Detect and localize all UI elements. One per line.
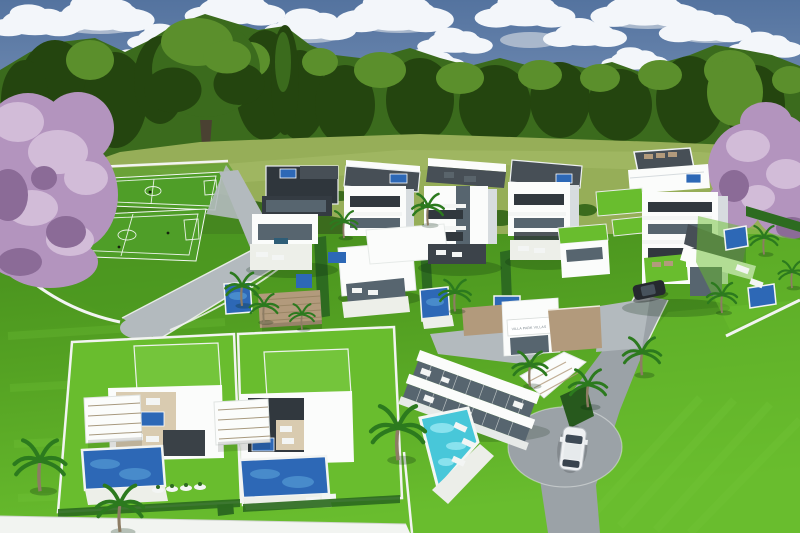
rooftop-pool xyxy=(390,174,407,183)
green-roof xyxy=(134,343,221,391)
furniture xyxy=(534,248,545,253)
sofa xyxy=(280,426,292,432)
villa-plot-2 xyxy=(214,327,402,512)
render-canvas: VILLA PARK VILLAS xyxy=(0,0,800,533)
terrace-pool xyxy=(724,226,748,250)
terrace-pool xyxy=(748,284,776,308)
green-roof-wing xyxy=(596,188,644,216)
garden-pool xyxy=(328,252,346,263)
indoor-pool xyxy=(141,412,164,426)
green-roof xyxy=(264,349,351,397)
main-pool xyxy=(82,446,165,490)
garden-lounger xyxy=(664,261,673,266)
courtyard-deck xyxy=(276,420,304,450)
balcony-slab xyxy=(508,212,566,216)
furniture xyxy=(368,290,378,295)
glazing-band xyxy=(266,200,326,212)
roof-lounger xyxy=(668,152,677,157)
furniture xyxy=(452,252,462,257)
side-pool xyxy=(296,274,312,288)
car-roof xyxy=(563,443,582,460)
lounger xyxy=(256,252,268,257)
tan-wing-right xyxy=(548,306,602,352)
mirror xyxy=(584,440,588,445)
roof-deck xyxy=(300,166,338,179)
base-band xyxy=(514,232,564,240)
window-band xyxy=(514,194,564,205)
villa-plot-1 xyxy=(58,334,241,517)
side-face xyxy=(488,189,497,244)
lounger xyxy=(272,255,284,260)
glazing-band xyxy=(514,218,564,228)
tower-glass xyxy=(510,335,549,355)
furniture xyxy=(518,246,529,251)
window-band xyxy=(648,202,712,212)
rooftop-pool xyxy=(280,169,296,178)
roof-lounger xyxy=(656,153,665,158)
poplar-highlight xyxy=(275,32,291,92)
garden-lounger xyxy=(652,262,661,267)
furniture xyxy=(352,288,362,293)
window-band xyxy=(350,196,400,207)
sofa xyxy=(146,398,160,405)
pergola xyxy=(84,395,142,443)
furniture xyxy=(436,250,446,255)
roof-lounger xyxy=(644,154,653,159)
window-band xyxy=(427,210,463,219)
sofa xyxy=(282,438,294,444)
street-end-pad xyxy=(120,317,160,339)
terrace-pool xyxy=(686,174,701,183)
mirror xyxy=(560,437,564,442)
lounger xyxy=(146,436,159,442)
balcony-slab xyxy=(344,212,402,216)
rooftop-pool xyxy=(556,174,572,183)
glass-front xyxy=(258,224,312,240)
dark-room xyxy=(163,430,205,456)
